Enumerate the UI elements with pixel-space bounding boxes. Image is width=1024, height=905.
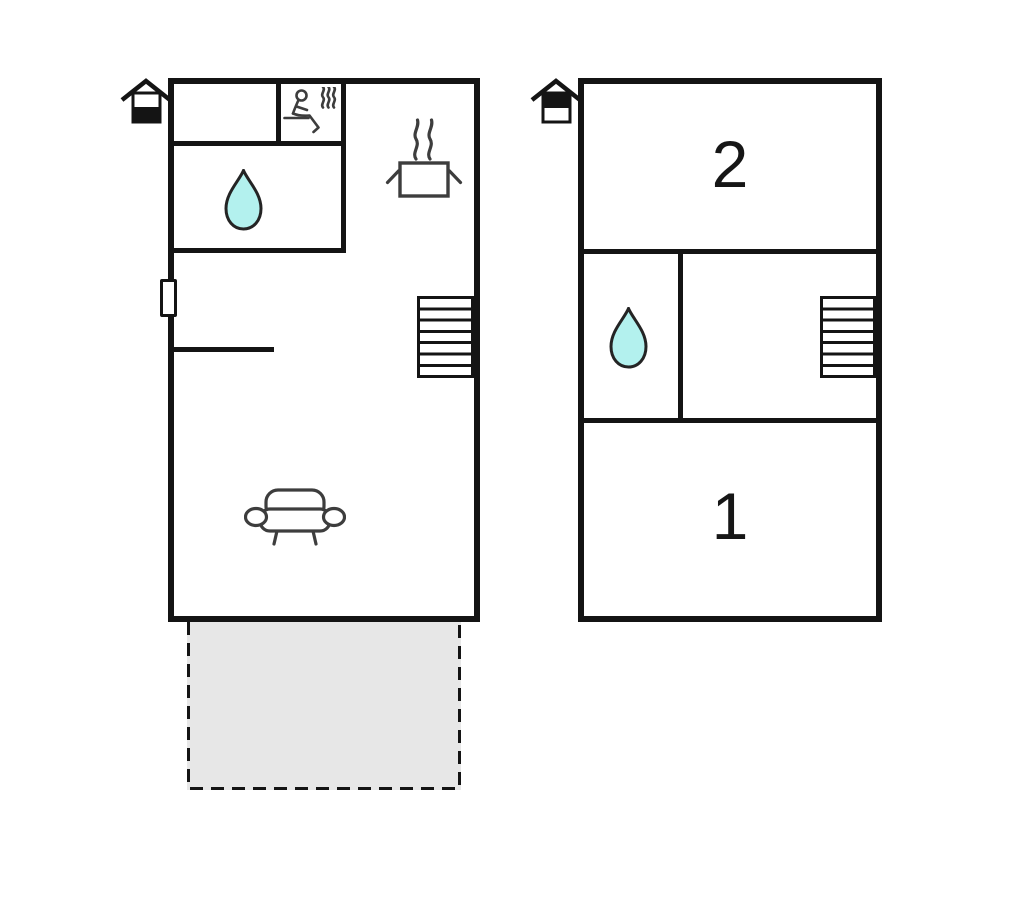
terrace	[187, 622, 461, 790]
window-marker	[160, 279, 177, 317]
wall-below-bedroom-2	[584, 249, 876, 254]
bedroom-1-label: 1	[584, 472, 876, 560]
floorplan-canvas: 2 1	[0, 0, 1024, 905]
stairs-icon-upper	[820, 296, 876, 378]
wall-sauna-divider	[276, 84, 281, 146]
house-floor-icon-ground	[120, 78, 172, 126]
wall-hall-stub	[174, 347, 274, 352]
wall-rooms-right	[341, 84, 346, 253]
house-floor-icon-upper	[530, 78, 582, 126]
wall-top-rooms-bottom	[174, 141, 346, 146]
wall-above-bedroom-1	[584, 418, 876, 423]
bedroom-2-label: 2	[584, 120, 876, 208]
water-drop-icon-ground	[224, 169, 263, 231]
cooking-pot-icon	[385, 117, 463, 201]
wall-bathroom-bottom	[174, 248, 346, 253]
sauna-icon	[282, 87, 338, 139]
wall-mid-divider	[678, 254, 683, 418]
sofa-icon	[244, 487, 346, 551]
stairs-icon-ground	[417, 296, 474, 378]
water-drop-icon-upper	[609, 307, 648, 369]
